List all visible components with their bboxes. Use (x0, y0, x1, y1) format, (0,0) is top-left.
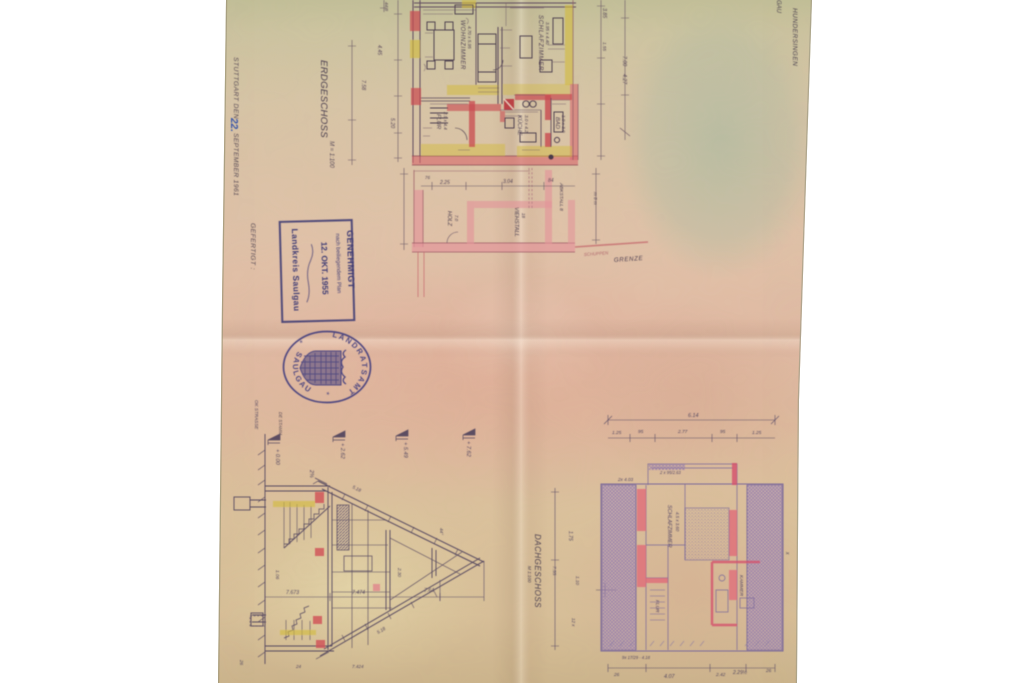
svg-text:4.5 x 3.60: 4.5 x 3.60 (675, 512, 680, 532)
svg-text:1.06: 1.06 (274, 570, 280, 580)
svg-text:FLUR: FLUR (435, 114, 441, 130)
svg-text:18: 18 (521, 213, 526, 218)
svg-text:4.07: 4.07 (664, 674, 675, 680)
svg-text:2.9 x 4.4: 2.9 x 4.4 (443, 111, 448, 130)
svg-text:7.55: 7.55 (551, 566, 557, 576)
svg-text:KAMMER: KAMMER (738, 575, 744, 597)
svg-text:2%: 2% (308, 469, 314, 478)
svg-text:1.55: 1.55 (602, 42, 607, 51)
svg-text:2x 4.03: 2x 4.03 (617, 477, 634, 482)
svg-text:1.75: 1.75 (567, 531, 573, 541)
svg-text:2.25: 2.25 (439, 180, 450, 186)
svg-text:7.474: 7.474 (352, 590, 365, 596)
svg-text:+ 2.62: + 2.62 (339, 443, 345, 460)
svg-text:KÜCHE: KÜCHE (516, 115, 523, 135)
svg-text:SCHLAFZIMMER: SCHLAFZIMMER (666, 505, 672, 548)
svg-text:HOLZ: HOLZ (446, 211, 452, 227)
svg-text:3.04: 3.04 (503, 179, 513, 185)
svg-text:7.0: 7.0 (454, 215, 459, 222)
svg-text:44°: 44° (439, 528, 444, 535)
svg-text:x: x (784, 551, 790, 555)
svg-text:BAD: BAD (554, 117, 560, 129)
svg-text:6.14: 6.14 (688, 413, 699, 419)
svg-text:3.95 x 4.40: 3.95 x 4.40 (545, 22, 550, 45)
svg-text:DE STAMM: DE STAMM (278, 412, 283, 435)
svg-text:m 8 m: m 8 m (593, 192, 598, 205)
svg-text:SEPTEMBER 1961: SEPTEMBER 1961 (232, 133, 239, 196)
svg-text:2.30: 2.30 (397, 567, 402, 577)
svg-text:GAU: GAU (775, 0, 781, 14)
svg-text:DACHGESCHOSS: DACHGESCHOSS (533, 534, 542, 608)
svg-text:+ 0.00: + 0.00 (274, 449, 280, 466)
svg-text:3.0 x 4.2: 3.0 x 4.2 (524, 115, 529, 133)
svg-text:1.25: 1.25 (752, 430, 762, 436)
svg-text:2.77: 2.77 (677, 429, 688, 435)
svg-text:1.10: 1.10 (575, 576, 580, 585)
svg-text:VIEHSTALL: VIEHSTALL (513, 207, 519, 237)
svg-text:WOHNZIMMER: WOHNZIMMER (459, 20, 466, 70)
svg-text:26: 26 (765, 668, 772, 674)
svg-text:7.673: 7.673 (286, 590, 299, 596)
svg-text:2.42: 2.42 (715, 672, 726, 678)
svg-text:4.27: 4.27 (621, 74, 627, 85)
svg-text:12 x: 12 x (571, 618, 576, 627)
svg-text:M 1:100: M 1:100 (527, 566, 532, 583)
svg-text:+ 7.62: + 7.62 (465, 441, 471, 458)
svg-text:STUTTGART DEN: STUTTGART DEN (232, 57, 239, 119)
svg-text:4.45: 4.45 (376, 45, 382, 55)
svg-text:95: 95 (638, 429, 644, 435)
svg-text:3.85: 3.85 (601, 8, 607, 18)
svg-text:7.58: 7.58 (360, 80, 366, 90)
svg-text:SCHLAFZIMMER: SCHLAFZIMMER (537, 15, 544, 71)
svg-text:ABKSTALL 8: ABKSTALL 8 (558, 182, 564, 211)
svg-text:GEFERTIGT :: GEFERTIGT : (249, 223, 256, 270)
svg-text:84: 84 (548, 178, 554, 184)
svg-text:7.00: 7.00 (621, 56, 627, 66)
svg-text:1.9 x 3.0: 1.9 x 3.0 (561, 115, 566, 133)
svg-text:5.20: 5.20 (389, 118, 395, 128)
svg-text:95: 95 (720, 429, 726, 435)
svg-text:GENEHMIGT: GENEHMIGT (345, 230, 357, 289)
svg-text:2 x 95/2.63: 2 x 95/2.63 (659, 470, 681, 475)
svg-text:44.8: 44.8 (384, 2, 389, 11)
svg-text:M = 1:100: M = 1:100 (328, 141, 334, 169)
svg-text:4.70 x 5.95: 4.70 x 5.95 (467, 26, 472, 49)
svg-text:26: 26 (239, 659, 244, 666)
svg-text:12. OKT. 1955: 12. OKT. 1955 (319, 242, 329, 295)
svg-text:7.424: 7.424 (352, 664, 364, 669)
svg-text:76: 76 (425, 175, 430, 180)
svg-text:2.29½: 2.29½ (732, 669, 748, 676)
svg-text:1.25: 1.25 (612, 430, 622, 436)
svg-text:26: 26 (613, 672, 620, 678)
svg-text:FLUR: FLUR (654, 600, 660, 613)
svg-text:OK STRASSE: OK STRASSE (254, 400, 259, 430)
svg-text:24: 24 (295, 664, 302, 669)
svg-text:9x 17/29 · 4.18: 9x 17/29 · 4.18 (622, 655, 651, 660)
svg-text:22.: 22. (228, 117, 239, 132)
svg-text:HUNDERSINGEN: HUNDERSINGEN (791, 8, 798, 66)
svg-text:+ 5.49: + 5.49 (402, 442, 408, 458)
svg-text:ERDGESCHOSS: ERDGESCHOSS (318, 60, 329, 138)
svg-text:7.64: 7.64 (424, 588, 434, 594)
